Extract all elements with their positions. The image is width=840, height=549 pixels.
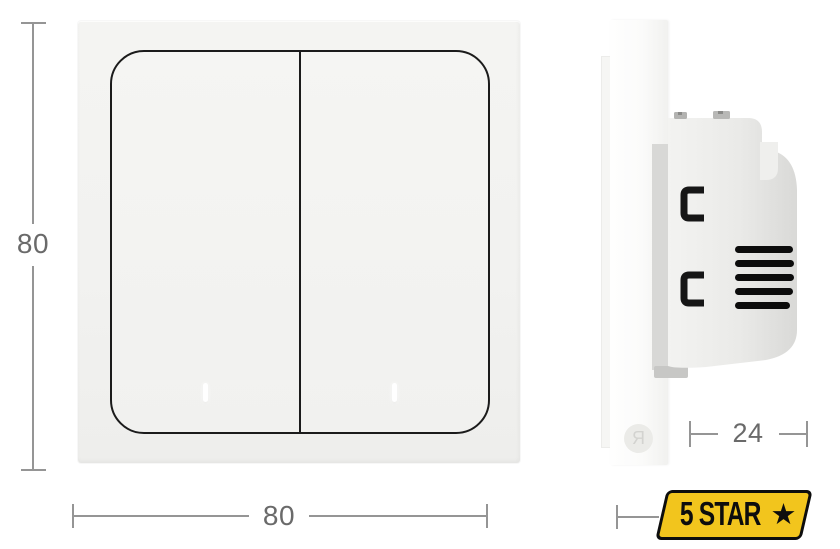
vent-slot-3 <box>735 274 794 281</box>
height-dimension-line-lower <box>32 266 34 470</box>
vent-slot-2 <box>735 260 794 267</box>
height-dimension-label: 80 <box>8 230 58 258</box>
switch-side-body <box>648 108 800 388</box>
width-dimension-tick-left <box>72 504 74 528</box>
five-star-badge-content: 5 STAR ★ <box>671 498 796 532</box>
height-dimension-tick-bottom <box>21 469 46 471</box>
product-dimension-diagram: 80 80 <box>0 0 840 549</box>
vent-slot-4 <box>735 288 793 295</box>
star-icon: ★ <box>771 501 797 530</box>
depth-dimension-label: 24 <box>718 420 778 447</box>
partial-dimension-line <box>617 516 659 518</box>
width-dimension-line-left <box>73 515 249 517</box>
screw-detail-right <box>718 111 723 114</box>
yandex-logo-icon: Я <box>624 424 653 453</box>
rocker-buttons-outline <box>110 50 490 434</box>
right-rocker-button <box>301 52 488 432</box>
width-dimension-tick-right <box>486 504 488 528</box>
vent-slot-1 <box>735 246 793 253</box>
bottom-foot-tab <box>654 366 688 378</box>
vent-slot-5 <box>735 302 790 309</box>
five-star-badge-label: 5 STAR <box>680 496 761 534</box>
width-dimension-label: 80 <box>249 502 309 530</box>
left-rocker-button <box>112 52 301 432</box>
screw-detail-left <box>678 112 682 115</box>
right-led-indicator <box>392 383 397 402</box>
width-dimension-line-right <box>309 515 487 517</box>
height-dimension-line-upper <box>32 23 34 224</box>
body-step-tab <box>760 142 778 180</box>
left-led-indicator <box>203 383 208 402</box>
mounting-frame <box>652 144 670 370</box>
height-dimension-tick-top <box>21 22 46 24</box>
depth-dimension-line-left <box>690 433 718 435</box>
depth-dimension-line-right <box>779 433 807 435</box>
five-star-badge: 5 STAR ★ <box>655 490 813 540</box>
